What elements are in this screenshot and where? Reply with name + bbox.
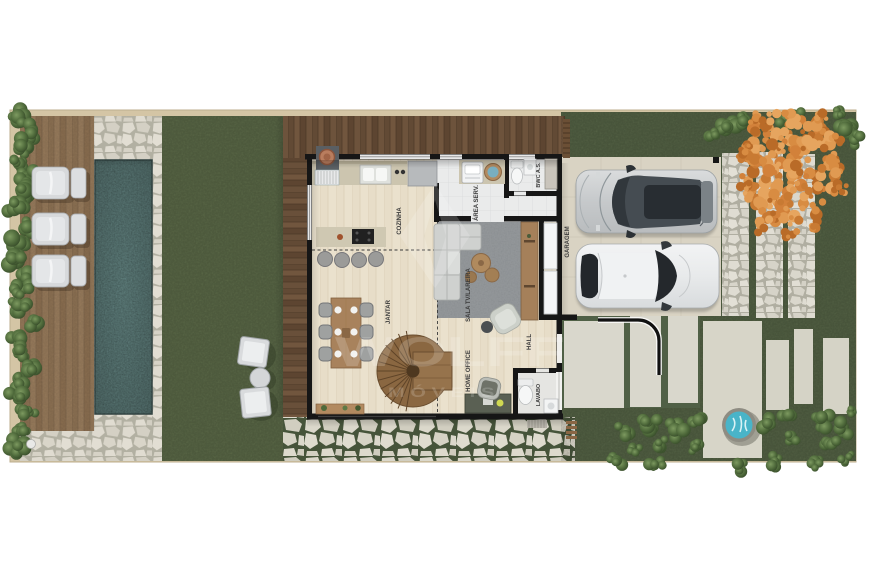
svg-text:BWC A.S.: BWC A.S.: [536, 162, 542, 188]
svg-text:LAVABO: LAVABO: [536, 383, 542, 406]
svg-text:MÓVEIS: MÓVEIS: [388, 383, 500, 400]
svg-text:GARAGEM: GARAGEM: [565, 226, 571, 257]
svg-text:ÁREA SERV.: ÁREA SERV.: [473, 185, 480, 221]
svg-text:COZINHA: COZINHA: [397, 207, 403, 235]
svg-text:JANTAR: JANTAR: [386, 299, 392, 324]
svg-text:SALA TV/LAREIRA: SALA TV/LAREIRA: [466, 267, 472, 321]
svg-text:WOLFF: WOLFF: [335, 328, 565, 375]
